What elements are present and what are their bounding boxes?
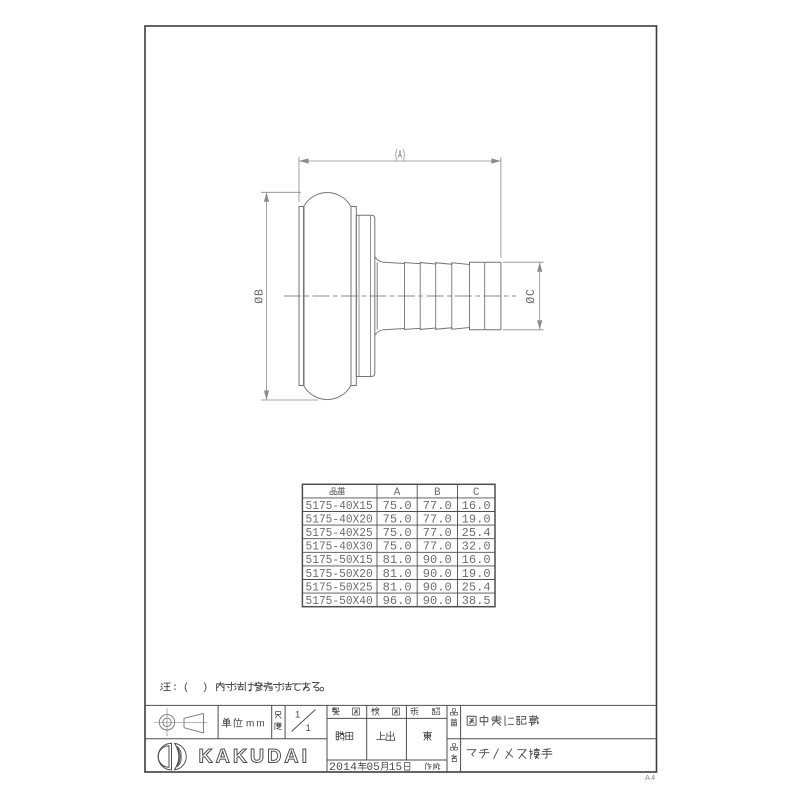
svg-text:C: C xyxy=(473,487,480,499)
svg-text:19.0: 19.0 xyxy=(462,512,491,526)
svg-text:75.0: 75.0 xyxy=(383,526,412,540)
svg-text:5175-50X20: 5175-50X20 xyxy=(306,567,373,581)
svg-text:1: 1 xyxy=(295,710,300,721)
svg-text:A: A xyxy=(394,487,401,499)
svg-text:( ): ( ) xyxy=(183,682,208,694)
svg-text:90.0: 90.0 xyxy=(423,594,452,608)
svg-text:05: 05 xyxy=(367,762,380,774)
svg-text:5175-50X15: 5175-50X15 xyxy=(306,553,373,567)
svg-text:5175-40X25: 5175-40X25 xyxy=(306,526,373,540)
svg-text:77.0: 77.0 xyxy=(423,540,452,554)
svg-text::: : xyxy=(172,683,178,694)
svg-text:75.0: 75.0 xyxy=(383,540,412,554)
svg-text:38.5: 38.5 xyxy=(462,594,491,608)
svg-text:90.0: 90.0 xyxy=(423,580,452,594)
svg-text:81.0: 81.0 xyxy=(383,580,412,594)
svg-text:(A): (A) xyxy=(395,148,406,162)
svg-text:19.0: 19.0 xyxy=(462,567,491,581)
svg-text:15: 15 xyxy=(389,762,402,774)
svg-text:5175-40X20: 5175-40X20 xyxy=(306,512,373,526)
svg-text:32.0: 32.0 xyxy=(462,540,491,554)
svg-text:81.0: 81.0 xyxy=(383,567,412,581)
svg-text:77.0: 77.0 xyxy=(423,512,452,526)
svg-text:75.0: 75.0 xyxy=(383,512,412,526)
svg-text:5175-40X30: 5175-40X30 xyxy=(306,540,373,554)
svg-text:2014: 2014 xyxy=(329,762,357,774)
svg-text:ØC: ØC xyxy=(525,288,538,303)
svg-text:ØB: ØB xyxy=(253,288,266,303)
svg-text:77.0: 77.0 xyxy=(423,526,452,540)
svg-text:A4: A4 xyxy=(645,773,656,782)
svg-text:16.0: 16.0 xyxy=(462,553,491,567)
svg-text:5175-50X40: 5175-50X40 xyxy=(306,594,373,608)
svg-text:77.0: 77.0 xyxy=(423,499,452,513)
svg-text:81.0: 81.0 xyxy=(383,553,412,567)
svg-text:75.0: 75.0 xyxy=(383,499,412,513)
svg-text:90.0: 90.0 xyxy=(423,553,452,567)
svg-text:96.0: 96.0 xyxy=(383,594,412,608)
svg-text:mm: mm xyxy=(246,718,267,729)
svg-text:25.4: 25.4 xyxy=(462,526,491,540)
svg-text:90.0: 90.0 xyxy=(423,567,452,581)
svg-text:1: 1 xyxy=(306,723,311,734)
svg-text:16.0: 16.0 xyxy=(462,499,491,513)
svg-text:B: B xyxy=(434,487,441,499)
svg-text:5175-40X15: 5175-40X15 xyxy=(306,499,373,513)
svg-text:5175-50X25: 5175-50X25 xyxy=(306,580,373,594)
svg-text:KAKUDAI: KAKUDAI xyxy=(199,745,311,767)
svg-text:25.4: 25.4 xyxy=(462,580,491,594)
